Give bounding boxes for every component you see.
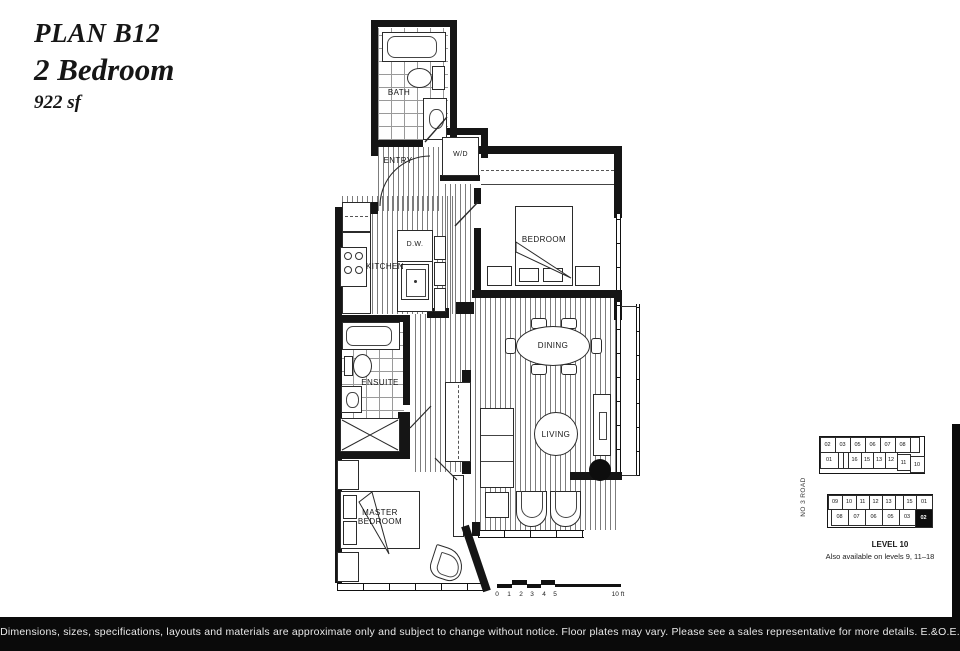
ensuite-toilet [344, 356, 353, 376]
unit-cell: 07 [880, 437, 896, 453]
island-cabinet [434, 288, 446, 312]
keyplan-level-label: LEVEL 10 [820, 540, 960, 549]
unit-cell: 16 [848, 452, 862, 469]
unit-cell-highlighted: 02 [915, 509, 933, 528]
unit-cell: 05 [882, 509, 900, 526]
room-label-master-bedroom: MASTER BEDROOM [349, 508, 411, 526]
bed-pillow [519, 268, 539, 282]
unit-cell: 03 [899, 509, 916, 526]
living-dining-window [616, 302, 621, 474]
media-console [593, 394, 611, 456]
unit-cell: 13 [882, 495, 896, 510]
keyplan-availability-note: Also available on levels 9, 11–18 [790, 552, 960, 561]
wall [371, 20, 457, 27]
unit-cell: 15 [903, 495, 917, 510]
island-cabinet [434, 262, 446, 286]
structural-column [589, 459, 611, 481]
master-bedroom-window [337, 583, 485, 591]
dining-chair [505, 338, 516, 354]
room-label-living: LIVING [534, 430, 578, 439]
room-label-ensuite: ENSUITE [349, 378, 411, 387]
scale-tick: 0 [495, 591, 499, 598]
scale-tick: 1 [507, 591, 511, 598]
nightstand [575, 266, 600, 286]
disclaimer-bar: Dimensions, sizes, specifications, layou… [0, 617, 960, 651]
plan-name: PLAN B12 [34, 18, 174, 49]
lounge-chair [427, 544, 467, 584]
balcony-edge [621, 306, 637, 307]
closet-front [481, 184, 614, 185]
dining-chair [591, 338, 602, 354]
scale-end-label: 10 ft [612, 591, 625, 598]
bedroom-window [616, 214, 621, 292]
unit-cell: 08 [831, 509, 849, 526]
balcony-rail [636, 304, 640, 476]
wall [456, 302, 474, 314]
unit-cell: 11 [897, 454, 911, 471]
island-cabinet [434, 236, 446, 260]
stove-burner [355, 266, 363, 274]
disclaimer-text: Dimensions, sizes, specifications, layou… [0, 626, 960, 638]
wall [474, 228, 481, 290]
living-balcony-door [478, 530, 584, 538]
wall [371, 20, 378, 148]
floor-plan: W/D D.W. [335, 14, 717, 615]
ensuite-tub [342, 322, 400, 350]
dining-chair [531, 364, 547, 375]
road-label: NO 3 ROAD [800, 467, 810, 527]
keyplan-lower-building: 09 10 11 12 13 15 01 08 07 06 05 03 02 [827, 494, 933, 528]
room-label-dining: DINING [516, 341, 590, 350]
wall [371, 142, 378, 156]
wall [335, 452, 410, 459]
brochure-page: PLAN B12 2 Bedroom 922 sf [0, 0, 960, 651]
unit-cell [910, 437, 920, 453]
plan-size: 922 sf [34, 92, 174, 114]
room-label-kitchen: KITCHEN [363, 262, 407, 271]
wall [472, 522, 480, 536]
unit-cell: 10 [842, 495, 857, 510]
unit-cell: 11 [856, 495, 870, 510]
ensuite-toilet-bowl [353, 354, 372, 378]
room-label-dw: D.W. [397, 241, 433, 249]
fridge [342, 202, 371, 232]
wall [403, 315, 410, 405]
nightstand [337, 552, 359, 582]
bed-pillow [543, 268, 563, 282]
room-label-bath: BATH [379, 88, 419, 97]
armchair [516, 491, 547, 527]
wall [450, 20, 457, 156]
ensuite-sink [341, 386, 362, 413]
unit-cell: 10 [910, 456, 925, 473]
dresser [453, 475, 464, 537]
wall [371, 140, 423, 147]
unit-cell: 05 [850, 437, 866, 453]
unit-cell: 03 [835, 437, 851, 453]
room-label-wd: W/D [442, 151, 479, 159]
scale-tick: 3 [530, 591, 534, 598]
unit-cell: 02 [820, 437, 836, 453]
toilet-bowl [407, 68, 432, 88]
armchair [550, 491, 581, 527]
unit-cell: 01 [916, 495, 933, 510]
nightstand [487, 266, 512, 286]
closet-rod [481, 170, 614, 171]
balcony-edge [621, 475, 637, 476]
toilet [432, 66, 445, 90]
unit-cell: 06 [865, 509, 883, 526]
unit-cell: 07 [848, 509, 866, 526]
storage-cabinet [480, 408, 514, 488]
wall [472, 290, 622, 298]
unit-cell: 12 [869, 495, 883, 510]
plan-type: 2 Bedroom [34, 52, 174, 88]
wall [478, 146, 622, 154]
nightstand [337, 460, 359, 490]
keyplan-upper-building: 02 03 05 06 07 08 01 16 15 13 12 11 10 [819, 436, 925, 474]
room-label-entry: ENTRY [373, 156, 423, 165]
dining-chair [561, 364, 577, 375]
stove-burner [344, 252, 352, 260]
scale-tick: 4 [542, 591, 546, 598]
master-closet [445, 382, 471, 462]
wall [474, 188, 481, 204]
wall [614, 146, 622, 218]
title-block: PLAN B12 2 Bedroom 922 sf [34, 18, 174, 114]
keyplan: NO 3 ROAD 02 03 05 06 07 08 01 16 15 13 … [795, 428, 960, 588]
scale-tick: 2 [519, 591, 523, 598]
unit-cell: 06 [865, 437, 881, 453]
side-table [485, 492, 509, 518]
scale-tick: 5 [553, 591, 557, 598]
bath-vanity-sink [423, 98, 447, 140]
sink-faucet [414, 280, 417, 283]
stove-burner [355, 252, 363, 260]
shower [340, 418, 400, 452]
unit-cell: 09 [828, 495, 843, 510]
wall [335, 315, 410, 322]
unit-cell: 08 [895, 437, 911, 453]
stove-burner [344, 266, 352, 274]
bathtub [382, 32, 446, 62]
unit-cell: 01 [820, 452, 839, 469]
room-label-bedroom: BEDROOM [514, 235, 574, 244]
